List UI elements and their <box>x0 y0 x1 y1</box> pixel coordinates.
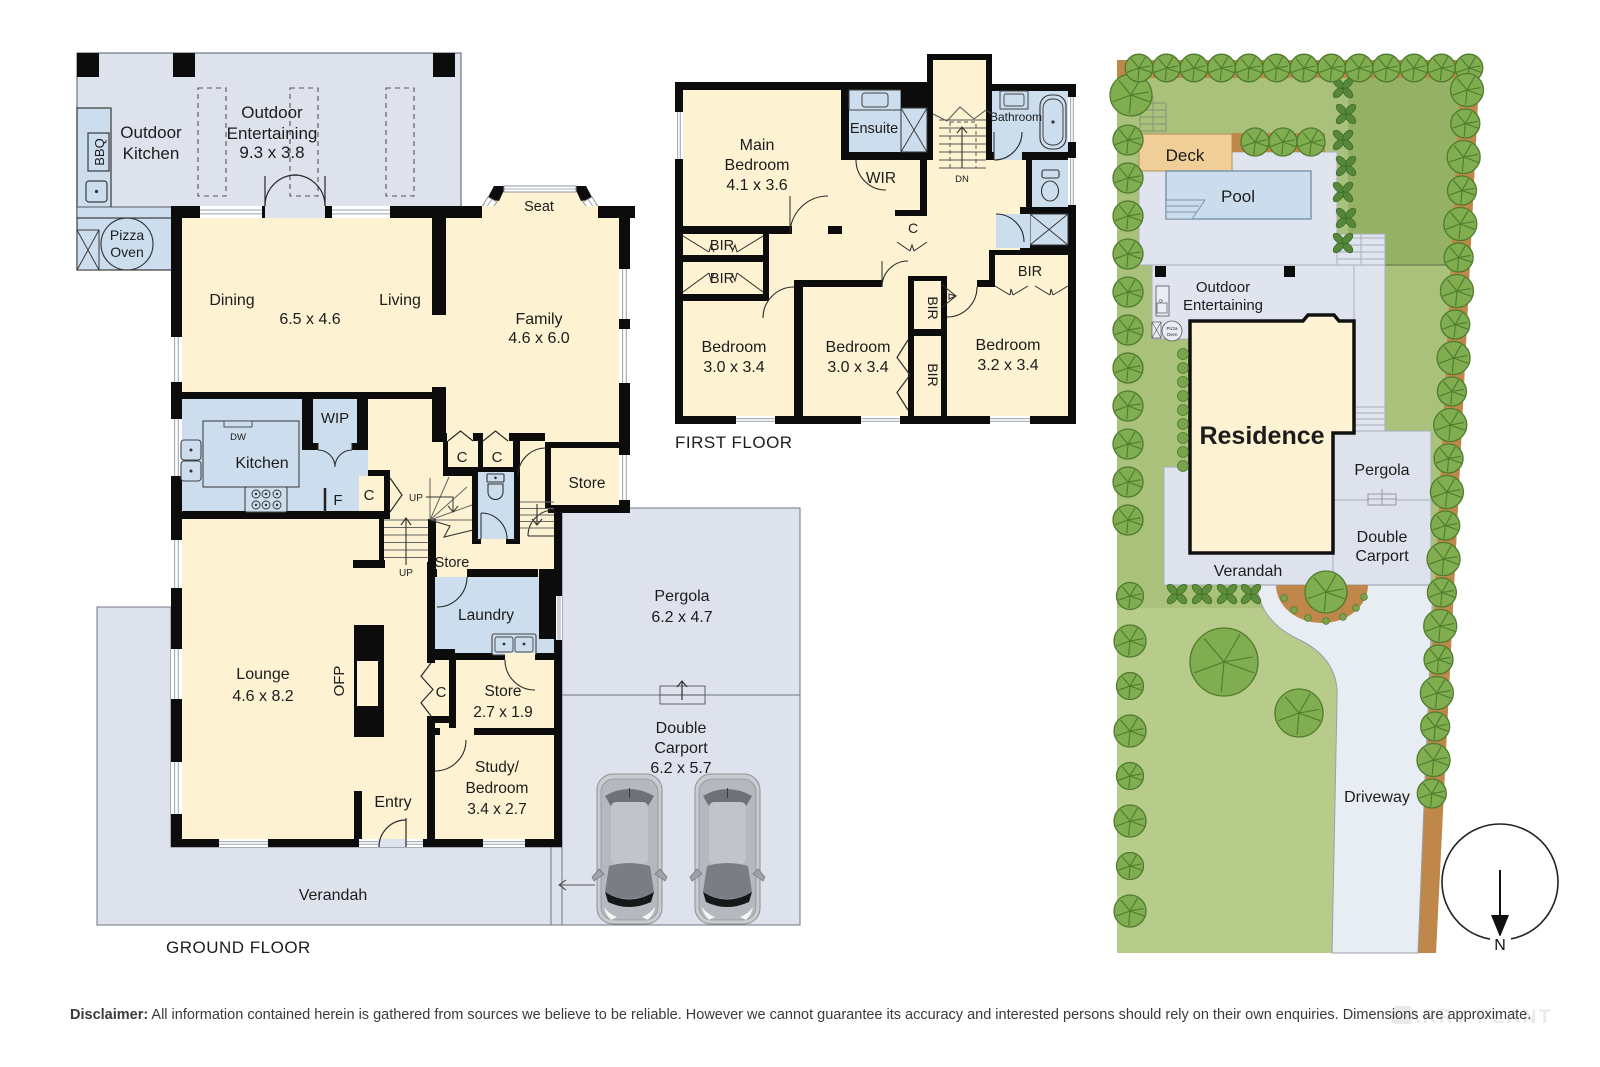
svg-text:Seat: Seat <box>524 199 554 215</box>
svg-text:DN: DN <box>955 174 969 185</box>
svg-text:Double: Double <box>656 720 707 737</box>
svg-text:6.5 x 4.6: 6.5 x 4.6 <box>279 311 340 328</box>
svg-text:Study/: Study/ <box>475 759 520 776</box>
svg-text:Verandah: Verandah <box>1214 563 1283 580</box>
svg-text:Pergola: Pergola <box>1354 462 1409 479</box>
svg-text:Kitchen: Kitchen <box>123 144 180 163</box>
svg-text:N: N <box>1494 937 1506 954</box>
svg-text:C: C <box>364 487 375 504</box>
svg-text:Verandah: Verandah <box>299 887 368 904</box>
svg-text:Entry: Entry <box>374 794 411 811</box>
svg-text:Bedroom: Bedroom <box>466 780 529 797</box>
svg-text:C: C <box>492 449 503 466</box>
svg-text:Kitchen: Kitchen <box>235 455 288 472</box>
svg-text:Outdoor: Outdoor <box>120 123 182 142</box>
svg-text:BIR: BIR <box>1018 264 1042 280</box>
svg-text:Outdoor: Outdoor <box>1196 279 1250 296</box>
svg-text:2.7 x 1.9: 2.7 x 1.9 <box>473 704 532 721</box>
svg-text:Oven: Oven <box>1167 332 1178 337</box>
svg-text:Entertaining: Entertaining <box>1183 297 1263 314</box>
svg-text:Deck: Deck <box>1166 146 1205 165</box>
svg-text:Laundry: Laundry <box>458 607 514 624</box>
svg-text:Store: Store <box>484 683 521 700</box>
svg-text:3.0 x 3.4: 3.0 x 3.4 <box>827 359 888 376</box>
svg-text:3.4 x 2.7: 3.4 x 2.7 <box>467 801 526 818</box>
svg-text:Store: Store <box>435 555 470 571</box>
svg-text:Pergola: Pergola <box>654 588 709 605</box>
svg-text:Lounge: Lounge <box>236 666 289 683</box>
svg-text:4.6 x 6.0: 4.6 x 6.0 <box>508 330 569 347</box>
svg-text:C: C <box>457 449 468 466</box>
svg-text:BIR: BIR <box>925 296 941 319</box>
svg-text:3.0 x 3.4: 3.0 x 3.4 <box>703 359 764 376</box>
svg-text:Pizza: Pizza <box>1166 326 1178 331</box>
svg-text:6.2 x 4.7: 6.2 x 4.7 <box>651 609 712 626</box>
svg-text:Residence: Residence <box>1199 422 1324 450</box>
svg-text:Carport: Carport <box>654 740 708 757</box>
svg-text:BIR: BIR <box>925 363 941 386</box>
svg-text:4.6 x 8.2: 4.6 x 8.2 <box>232 688 293 705</box>
svg-text:Dining: Dining <box>209 292 254 309</box>
svg-text:9.3 x 3.8: 9.3 x 3.8 <box>239 143 304 162</box>
svg-text:Carport: Carport <box>1355 548 1409 565</box>
svg-text:Bedroom: Bedroom <box>826 339 891 356</box>
svg-text:C: C <box>908 220 918 236</box>
svg-text:Living: Living <box>379 292 421 309</box>
svg-text:Pool: Pool <box>1221 187 1255 206</box>
svg-text:Bedroom: Bedroom <box>702 339 767 356</box>
svg-text:FIRST FLOOR: FIRST FLOOR <box>675 433 793 452</box>
svg-text:Pizza: Pizza <box>110 227 144 243</box>
svg-text:DW: DW <box>230 432 246 443</box>
svg-text:Outdoor: Outdoor <box>241 103 303 122</box>
svg-text:3.2 x 3.4: 3.2 x 3.4 <box>977 357 1038 374</box>
svg-text:Oven: Oven <box>110 244 143 260</box>
svg-text:Ensuite: Ensuite <box>850 121 898 137</box>
svg-text:Driveway: Driveway <box>1344 789 1410 806</box>
svg-text:6.2 x 5.7: 6.2 x 5.7 <box>650 760 711 777</box>
svg-text:Disclaimer: All information co: Disclaimer: All information contained he… <box>70 1007 1531 1023</box>
svg-text:BBQ: BBQ <box>92 138 107 165</box>
svg-text:Double: Double <box>1357 529 1408 546</box>
svg-text:GROUND FLOOR: GROUND FLOOR <box>166 938 311 957</box>
svg-text:Bedroom: Bedroom <box>725 157 790 174</box>
svg-text:WIR: WIR <box>866 170 896 187</box>
svg-text:UP: UP <box>409 493 423 504</box>
svg-text:WIP: WIP <box>321 410 349 427</box>
svg-text:Main: Main <box>740 137 775 154</box>
svg-text:Bedroom: Bedroom <box>976 337 1041 354</box>
svg-text:C: C <box>436 684 447 701</box>
svg-text:Bathroom: Bathroom <box>990 110 1042 124</box>
svg-text:UP: UP <box>399 568 413 579</box>
svg-text:F: F <box>333 492 342 509</box>
svg-text:Family: Family <box>515 311 562 328</box>
svg-text:4.1 x 3.6: 4.1 x 3.6 <box>726 177 787 194</box>
svg-text:Store: Store <box>568 475 605 492</box>
svg-text:OFP: OFP <box>331 666 348 697</box>
svg-text:Entertaining: Entertaining <box>227 124 318 143</box>
